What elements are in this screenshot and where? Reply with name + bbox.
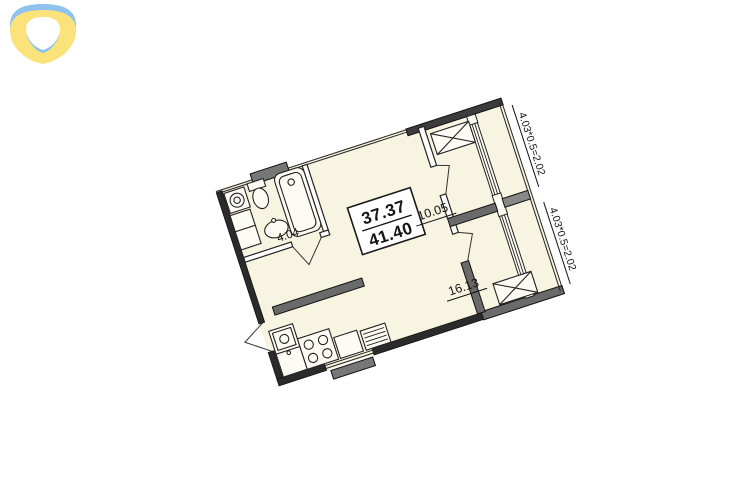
brand-logo bbox=[10, 4, 76, 64]
sink-tap bbox=[286, 350, 291, 355]
floor-plan-page: 37.37 41.40 10.05 16.13 4.04 4.03*0.5=2.… bbox=[0, 0, 748, 486]
floor-plan-canvas: 37.37 41.40 10.05 16.13 4.04 4.03*0.5=2.… bbox=[0, 0, 748, 486]
basin-tap bbox=[271, 218, 276, 223]
floor-plan: 37.37 41.40 10.05 16.13 4.04 4.03*0.5=2.… bbox=[196, 86, 588, 401]
